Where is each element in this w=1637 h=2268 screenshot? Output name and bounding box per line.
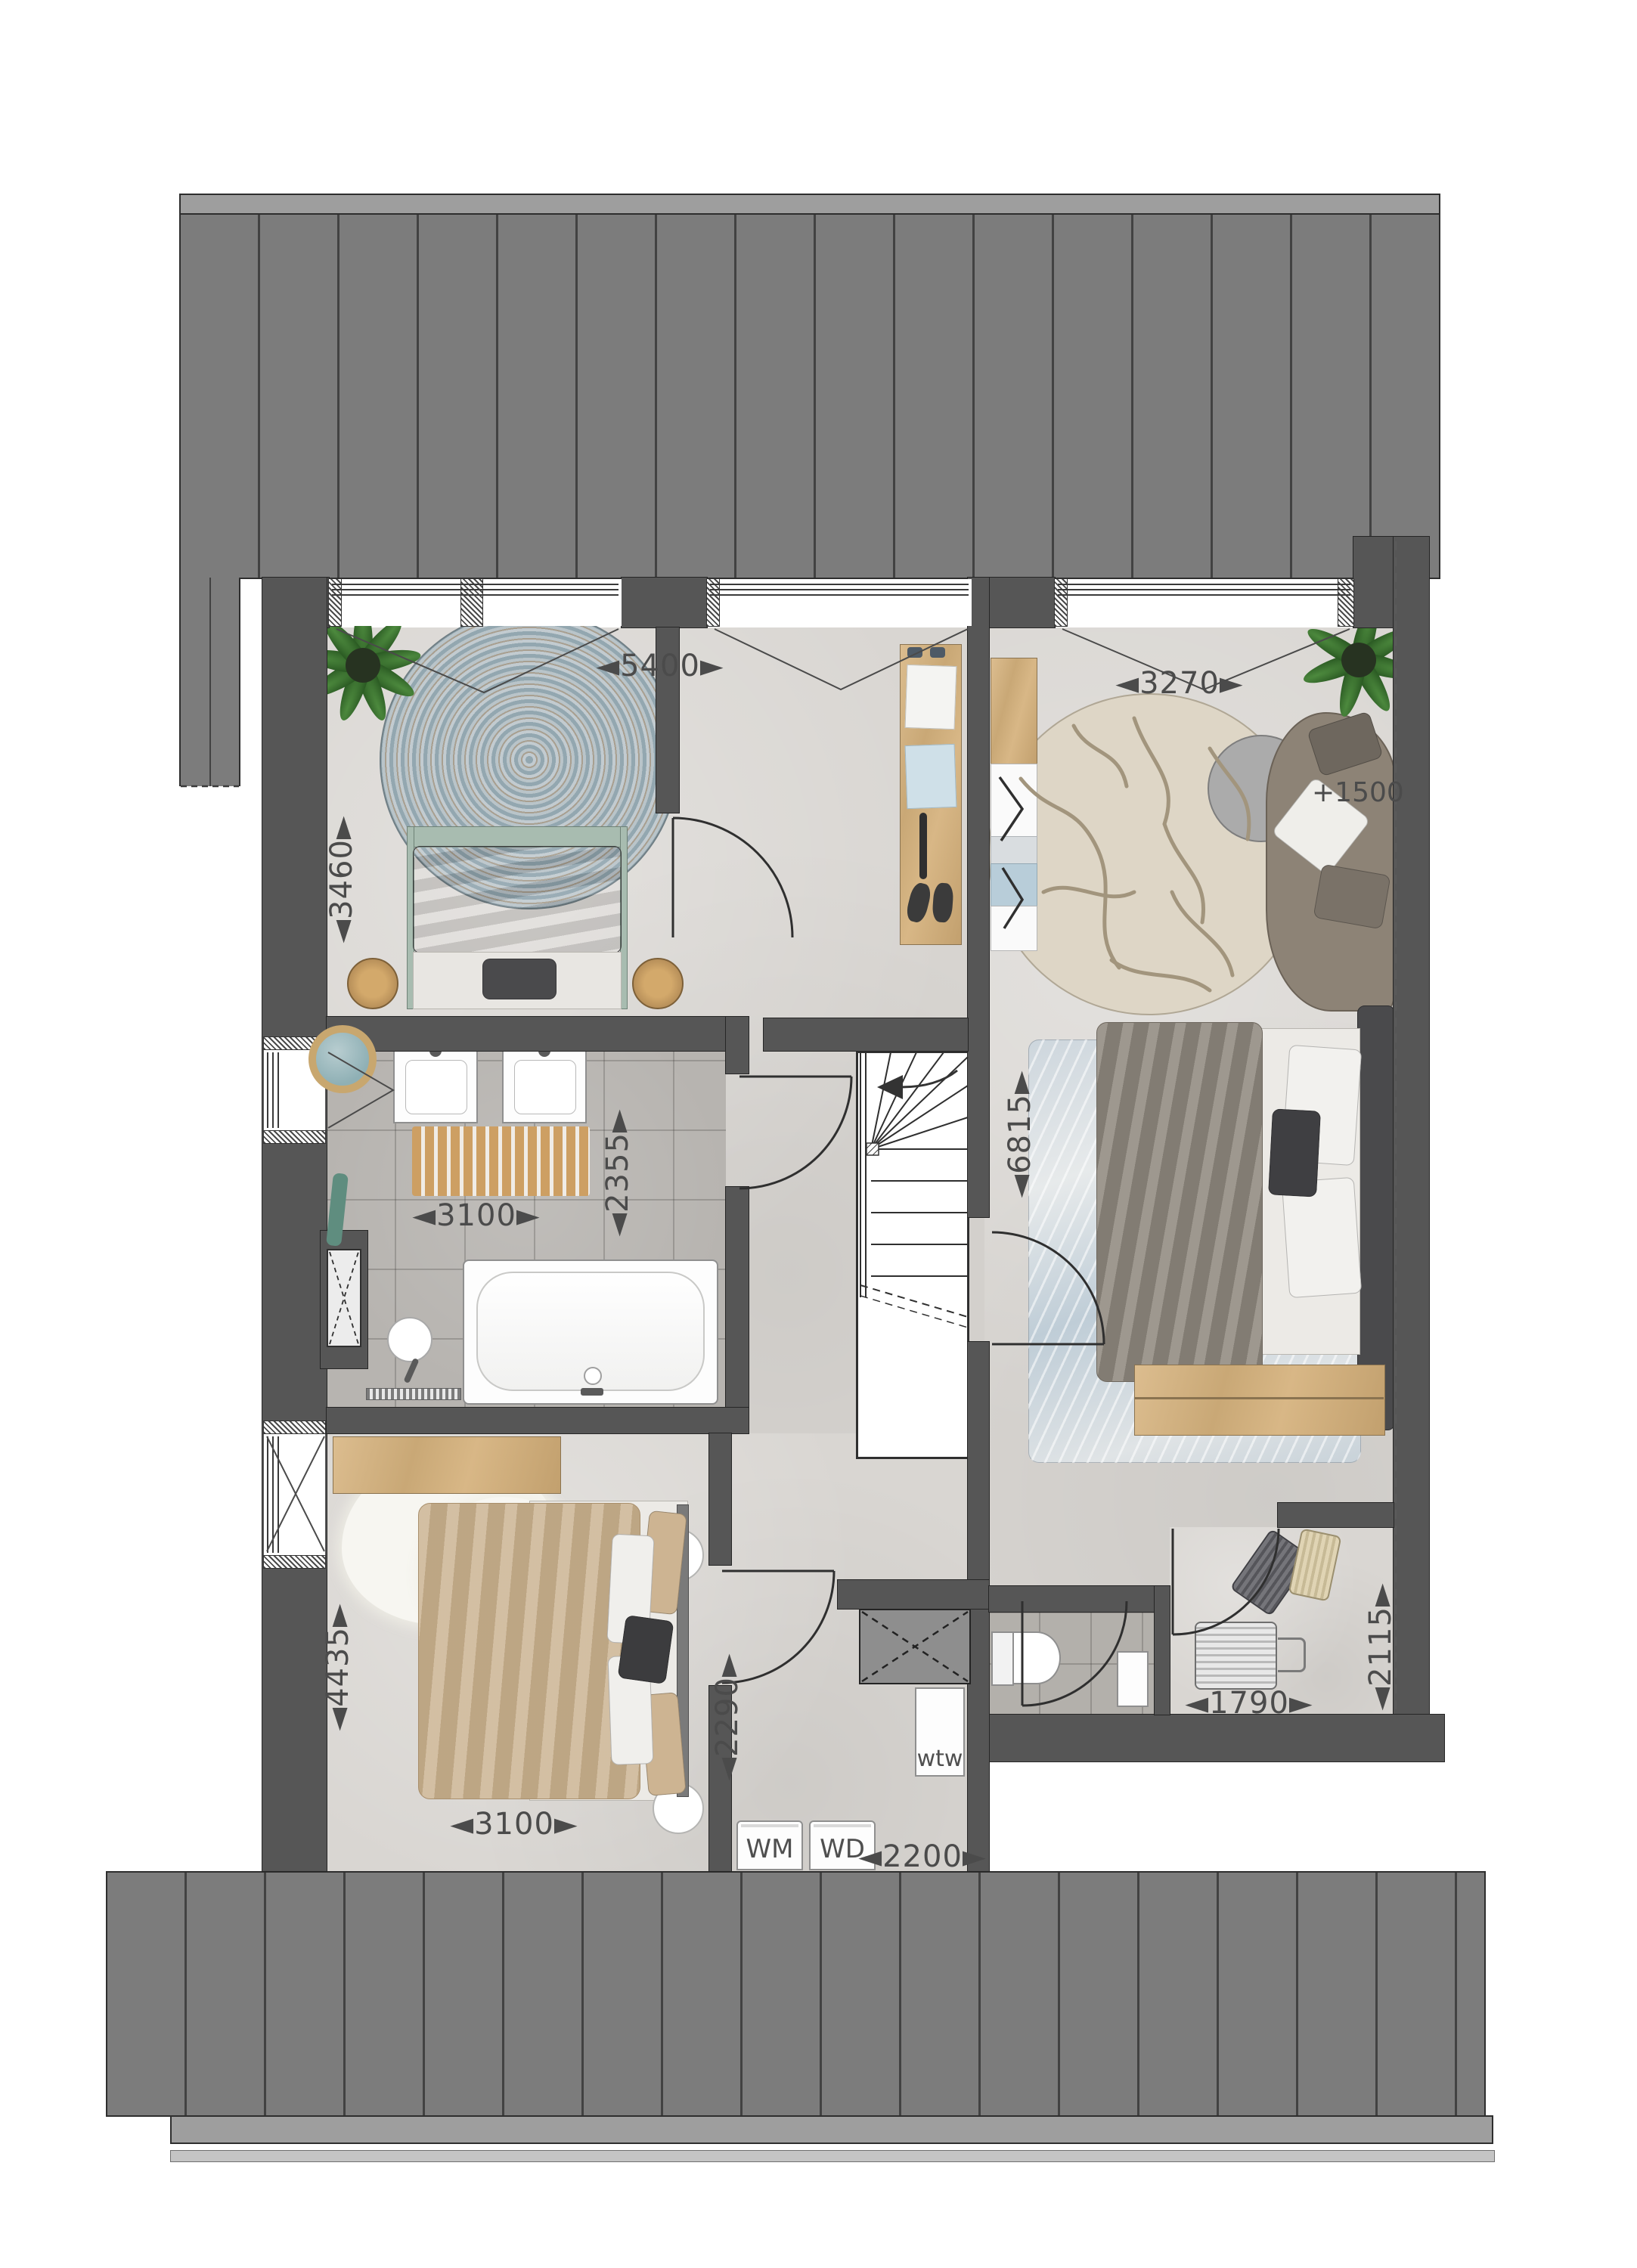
bed1-headboard [407, 826, 628, 847]
sink-basin [405, 1060, 467, 1114]
top-roof-planks [179, 213, 1440, 579]
wm-label: WM [738, 1834, 801, 1864]
dim-big-room-depth: ◄6815► [1003, 1070, 1037, 1198]
wooden-bath-mat [412, 1126, 590, 1196]
dim-bath-depth: ◄2355► [600, 1108, 635, 1236]
heat-recovery-unit: wtw [915, 1687, 965, 1777]
cabinet-gray [991, 836, 1037, 865]
window-top-3 [1055, 579, 1353, 626]
window-hatch-post [264, 1131, 325, 1143]
cabinet-white [991, 764, 1037, 838]
dim-top-left-width: ◄5400► [596, 649, 724, 683]
wall-divider-upper [968, 578, 989, 1217]
wall-stair-top [764, 1018, 968, 1051]
dresser [333, 1436, 561, 1494]
wall-bathroom-bottom [327, 1408, 749, 1433]
wall-bathroom-right-upper [726, 1017, 749, 1074]
dim-bed1-depth: ◄3460► [324, 815, 359, 943]
cabinet-white-bottom [991, 906, 1037, 951]
wall-bathroom-right-lower [726, 1187, 749, 1433]
window-hatch-post [1055, 579, 1067, 626]
shoes [930, 647, 945, 658]
cabinet-wood-top [991, 658, 1037, 765]
bottom-roof-ridge [170, 2115, 1493, 2144]
window-hatch-post [707, 579, 719, 626]
sink-basin [514, 1060, 576, 1114]
bed3-pillow-dark [617, 1615, 674, 1684]
wall-left [262, 578, 327, 1871]
window-hatch-post [461, 579, 482, 626]
wall-toilet-top [989, 1586, 1155, 1612]
dim-storage-width: ◄1790► [1185, 1686, 1313, 1721]
bed2-pillow-dark [1268, 1108, 1321, 1197]
window-top-2 [707, 579, 972, 626]
bath-shaft-box [327, 1249, 361, 1347]
wall-bedroom3-right-upper [709, 1433, 731, 1565]
stairwell [856, 1051, 969, 1459]
desk-handle [919, 813, 927, 879]
wall-toilet-storage-divider [1155, 1586, 1170, 1715]
window-hatch-post [329, 579, 341, 626]
toilet-hand-basin [1117, 1651, 1149, 1707]
toilet-cistern [991, 1631, 1014, 1686]
dim-bath-width: ◄3100► [412, 1198, 540, 1233]
cabinet-blue [991, 863, 1037, 907]
bottom-roof-planks [106, 1871, 1486, 2117]
shower-drain [366, 1388, 461, 1400]
top-roof-ridge [179, 194, 1440, 215]
ventilation-shaft [859, 1609, 971, 1684]
folded-shirt-white [905, 665, 957, 730]
bed1-duvet [413, 846, 622, 953]
window-left-bedroom3 [264, 1433, 325, 1556]
dim-bed3-width: ◄3100► [450, 1807, 578, 1842]
toilet-bowl [1012, 1631, 1061, 1684]
bench-gap-line [1134, 1397, 1384, 1399]
folded-shirt-blue [905, 744, 957, 809]
floor-plan-canvas: wtw WM WD [0, 0, 1637, 2268]
dim-storage-depth: ◄2115► [1363, 1582, 1398, 1710]
window-hatch-post [1338, 579, 1353, 626]
elevation-marker: +1500 [1312, 777, 1404, 808]
top-roof-left-extension [179, 578, 240, 786]
window-hatch-post [264, 1556, 325, 1568]
shoes [907, 647, 922, 658]
rattan-stool-right [632, 958, 684, 1009]
dim-hall-depth: ◄2290► [710, 1653, 745, 1780]
dim-bed3-depth: ◄4435► [321, 1603, 355, 1730]
bed1-pillow [482, 959, 557, 999]
bed-end-bench [1134, 1365, 1385, 1436]
bed2-duvet [1096, 1022, 1263, 1382]
wall-storage-top [1278, 1503, 1394, 1527]
bathtub-knob [584, 1367, 602, 1385]
suitcase-handle [1278, 1637, 1306, 1672]
suitcase-silver [1195, 1622, 1277, 1690]
window-hatch-post [264, 1421, 325, 1433]
dim-top-right-width: ◄3270► [1115, 666, 1243, 701]
wall-bathroom-top [327, 1017, 749, 1051]
wall-top-pier-1 [622, 578, 707, 627]
rattan-stool-left [347, 958, 398, 1009]
dim-hall-width: ◄2200► [858, 1839, 986, 1874]
shower-stool [387, 1317, 433, 1362]
bathtub-faucet [581, 1388, 603, 1396]
wall-shaft-top [838, 1580, 989, 1609]
round-mirror [308, 1025, 377, 1093]
wtw-label: wtw [916, 1746, 963, 1772]
wall-right [1394, 537, 1429, 1715]
bed3-duvet [418, 1503, 640, 1799]
wall-bottom-storage [975, 1715, 1444, 1761]
bottom-roof-edge-strip [170, 2150, 1495, 2162]
washing-machine: WM [736, 1820, 803, 1870]
